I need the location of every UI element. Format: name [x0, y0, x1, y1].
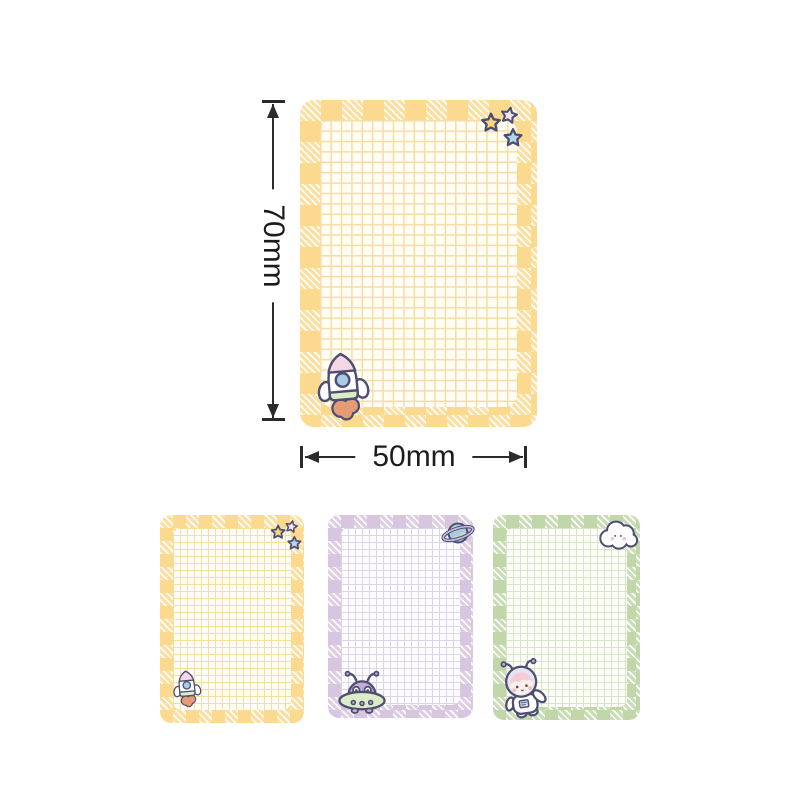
- memo-pad-variant-purple: [328, 515, 473, 718]
- rocket-icon-small: [170, 669, 204, 707]
- ufo-alien-icon: [334, 667, 390, 715]
- astronaut-icon: [496, 655, 554, 719]
- rocket-icon: [312, 350, 374, 420]
- cloud-icon: [597, 519, 639, 550]
- stars-icon: [472, 104, 526, 152]
- dimension-cap-left: [300, 446, 303, 468]
- dimension-cap-right: [524, 446, 527, 468]
- arrowhead-right-icon: [509, 451, 523, 463]
- width-label: 50mm: [355, 439, 472, 475]
- memo-pad-variant-yellow: [160, 515, 304, 723]
- height-label: 70mm: [253, 189, 293, 302]
- dimension-cap-bottom: [262, 418, 285, 421]
- planet-icon: [440, 519, 476, 549]
- dimension-cap-top: [262, 100, 285, 103]
- memo-pad-main: [300, 100, 537, 427]
- arrowhead-down-icon: [267, 404, 279, 418]
- memo-pad-variant-green: [493, 515, 640, 720]
- product-photo: 70mm 50mm: [0, 0, 800, 800]
- stars-icon-small: [264, 518, 304, 554]
